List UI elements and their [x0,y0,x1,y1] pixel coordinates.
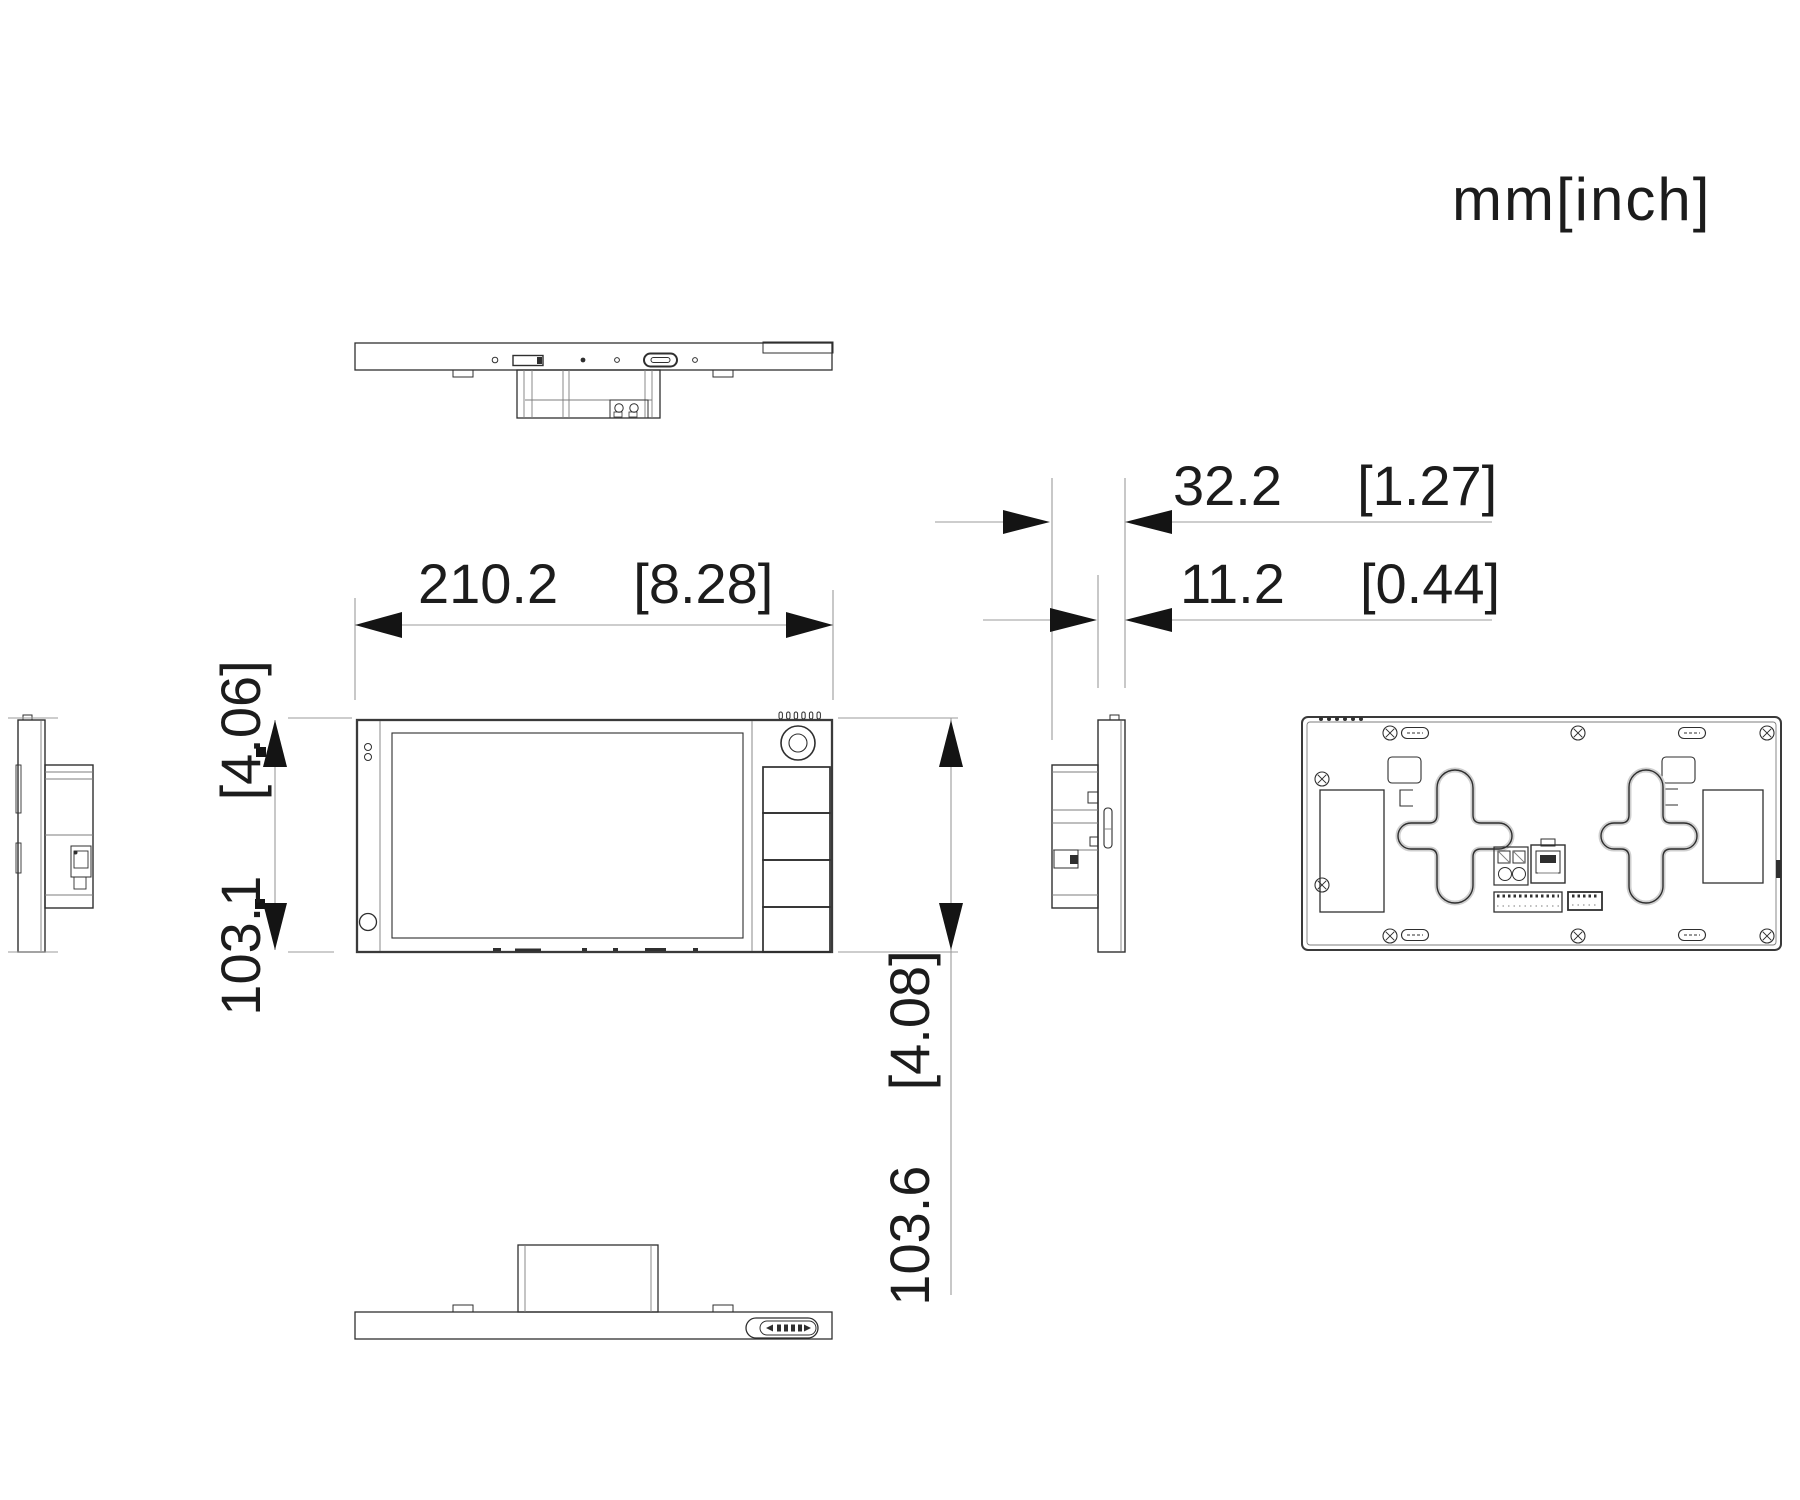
top-view [355,342,833,418]
screw-icon [1760,726,1774,740]
mount-slot-icon [1402,728,1429,739]
label-area [1320,790,1384,912]
bottom-view [355,1245,832,1339]
screw-icon [1760,929,1774,943]
mic-hole-icon [581,358,586,363]
screw-icon [1383,726,1397,740]
dim-label-panel-depth: 11.2 [0.44] [1180,556,1500,612]
dim-label-mount-depth: 32.2 [1.27] [1173,458,1497,514]
screw-icon [1315,772,1329,786]
mount-slot-icon [1679,728,1706,739]
sd-card-slot-icon [513,356,543,366]
keyhole-cross-left [1398,770,1512,903]
ethernet-port-icon [1531,839,1565,883]
mic-hole-icon [365,754,372,761]
keyhole-cross-right [1601,770,1697,903]
side-slot-icon [1104,808,1112,848]
left-side-view [16,715,93,952]
mount-slot-icon [1402,930,1429,941]
screw-icon [1571,726,1585,740]
screen [392,733,743,938]
screw-icon [1383,929,1397,943]
screw-icon [1571,929,1585,943]
dim-label-front-width: 210.2 [8.28] [418,556,773,612]
units-label: mm[inch] [1452,170,1711,230]
front-view [357,712,832,952]
dim-label-front-height: 103.1 [4.06] [213,660,269,1015]
dim-label-overall-height: 103.6 [4.08] [882,950,938,1305]
right-side-view [1052,715,1125,952]
usb-c-port-icon [644,354,677,367]
speaker-grille-icon [779,712,820,719]
label-area [1703,790,1763,883]
power-terminal-icon [1494,847,1528,885]
back-view [1302,717,1781,950]
top-view-mount-box [517,370,660,418]
camera-icon [781,726,815,760]
mic-hole-icon [365,744,372,751]
screw-icon [1315,878,1329,892]
slide-switch-icon [746,1318,818,1338]
pin-header-short-icon [1568,892,1602,910]
mount-slot-icon [1679,930,1706,941]
reset-hole-icon [492,357,498,363]
pin-header-long-icon [1494,892,1562,912]
dimension-drawing: mm[inch] 210.2 [8.28] 103.1 [4.06] 32.2 … [0,0,1800,1500]
side-clip-icon [1776,860,1781,878]
indicator-hole-icon [360,914,377,931]
side-buttons [763,767,830,952]
